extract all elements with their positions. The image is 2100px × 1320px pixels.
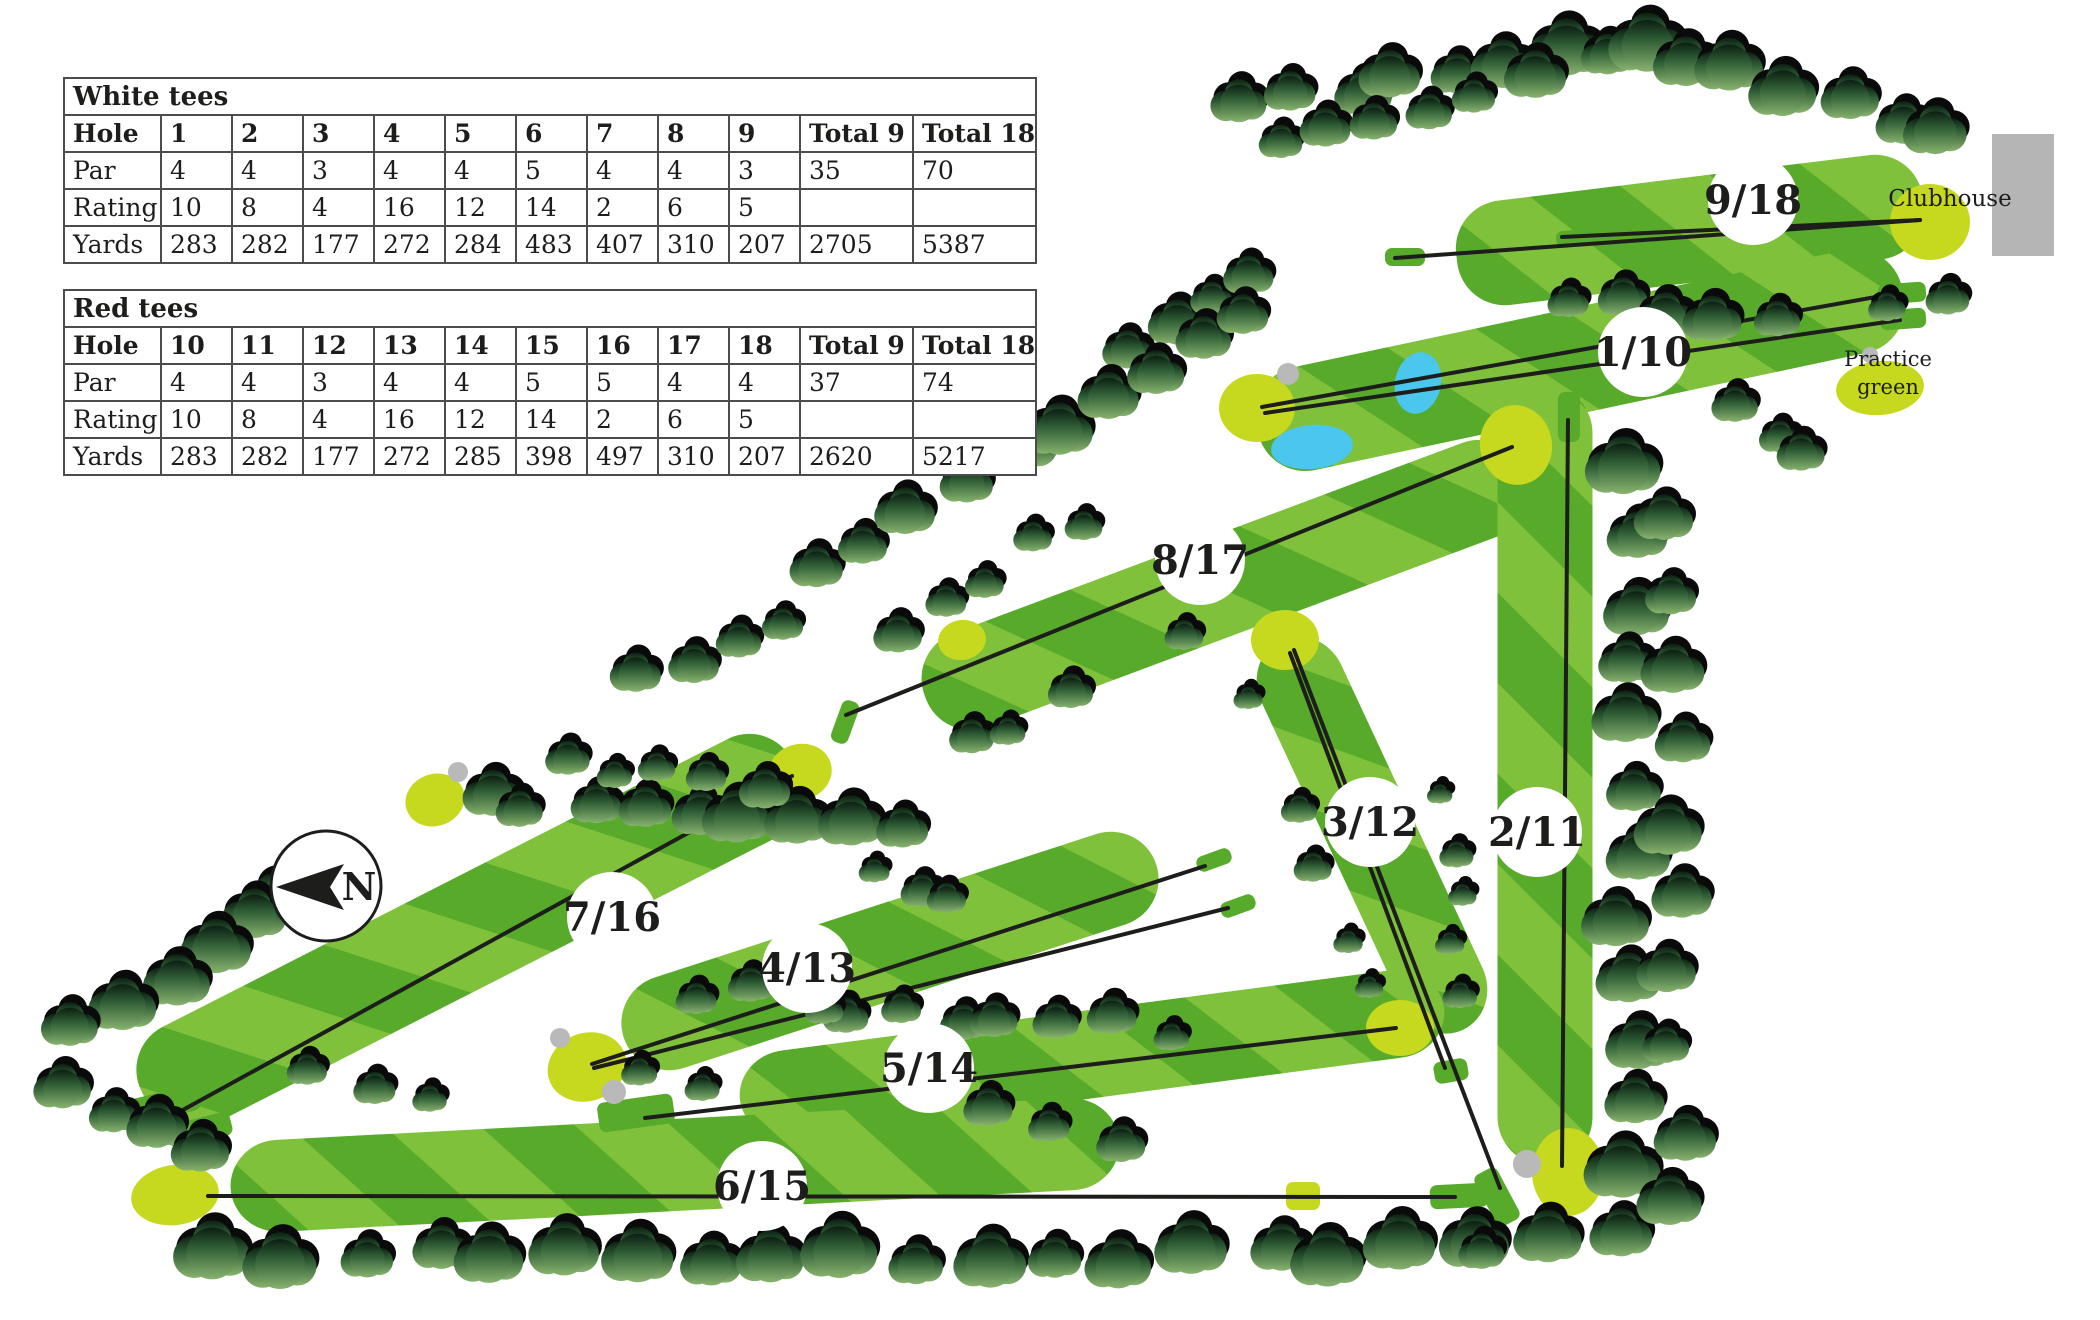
tree-icon [1032,995,1081,1039]
tree-icon [1333,923,1365,954]
hole-marker-label: 1/10 [1594,329,1692,376]
hole-line [208,1196,1455,1197]
red-cell: 14 [516,401,587,438]
tree-icon [1634,486,1696,540]
white-cell: 16 [374,189,445,226]
white-cell: 5 [729,189,800,226]
white-header-cell: 2 [232,115,303,152]
north-compass: N [271,831,381,941]
tree-icon [1087,988,1140,1034]
tree-icon [1358,42,1423,97]
white-cell [800,189,913,226]
tree-icon [970,992,1021,1037]
white-cell: 8 [232,189,303,226]
tree-icon [1604,1069,1667,1123]
white-cell: 6 [658,189,729,226]
tree-icon [925,577,969,616]
white-cell: 310 [658,226,729,263]
red-header-cell: 15 [516,327,587,364]
white-cell: 284 [445,226,516,263]
tree-icon [790,538,846,587]
bunker [602,1080,626,1104]
red-cell: 4 [161,364,232,401]
tree-icon [412,1077,449,1111]
red-cell: 6 [658,401,729,438]
tree-icon [1028,1229,1084,1278]
white-cell: 35 [800,152,913,189]
tree-icon [1640,636,1707,693]
white-cell: 283 [161,226,232,263]
tree-icon [353,1064,398,1104]
tree-icon [685,1066,723,1101]
tree-icon [1210,71,1269,122]
red-header-cell: 16 [587,327,658,364]
hole-marker-label: 8/17 [1151,537,1249,584]
white-header-cell: 3 [303,115,374,152]
tree-icon [1259,116,1306,157]
red-cell: 283 [161,438,232,475]
white-cell: Rating [64,189,161,226]
red-header-cell: Total 18 [913,327,1036,364]
tree-icon [545,732,592,774]
white-cell: 207 [729,226,800,263]
tree-icon [610,644,664,691]
red-cell: 3 [303,364,374,401]
tree-icon [1294,844,1335,881]
red-cell: 16 [374,401,445,438]
white-cell [913,189,1036,226]
white-cell: Par [64,152,161,189]
putting-green [1251,610,1319,670]
tree-icon [597,753,635,788]
hole-marker-label: 3/12 [1321,799,1419,846]
tree-icon [1363,1206,1438,1270]
white-cell: 3 [303,152,374,189]
tree-icon [762,600,806,640]
clubhouse-label: Clubhouse [1888,186,2011,212]
tree-icon [1154,1210,1229,1274]
white-header-cell: 8 [658,115,729,152]
white-cell: 483 [516,226,587,263]
red-cell: 2620 [800,438,913,475]
red-header-cell: 10 [161,327,232,364]
tree-icon [965,560,1007,598]
white-cell: 14 [516,189,587,226]
red-header-cell: 17 [658,327,729,364]
red-header-cell: Total 9 [800,327,913,364]
bunker [550,1028,570,1048]
white-cell: 4 [445,152,516,189]
tree-icon [1427,776,1455,803]
tree-icon [873,607,924,652]
tree-icon [1711,378,1760,422]
white-cell: 4 [374,152,445,189]
red-cell [800,401,913,438]
red-cell: 4 [232,364,303,401]
tree-icon [818,787,886,845]
tree-icon [888,1234,946,1284]
hole-marker-label: 6/15 [713,1163,811,1210]
practice-green-label: Practice [1844,347,1932,371]
red-cell: 497 [587,438,658,475]
hole-marker-label: 2/11 [1488,809,1586,856]
tree-icon [668,636,722,683]
white-header-cell: 5 [445,115,516,152]
white-header-cell: 9 [729,115,800,152]
red-cell: 310 [658,438,729,475]
red-cell: 37 [800,364,913,401]
red-cell: 5 [587,364,658,401]
tree-icon [874,479,938,534]
bunker [1277,363,1299,385]
red-header-cell: 18 [729,327,800,364]
white-cell: 4 [232,152,303,189]
tree-icon [876,800,931,848]
tree-icon [1645,567,1699,614]
white-cell: 70 [913,152,1036,189]
white-header-cell: Total 9 [800,115,913,152]
tree-icon [1448,876,1479,906]
white-cell: 2 [587,189,658,226]
red-header-cell: 11 [232,327,303,364]
tree-icon [1264,63,1318,111]
tree-icon [341,1229,396,1277]
red-cell: 282 [232,438,303,475]
red-cell: Rating [64,401,161,438]
white-cell: 12 [445,189,516,226]
compass-north-label: N [342,864,377,909]
white-cell: Yards [64,226,161,263]
white-tees-scorecard: White teesHole123456789Total 9Total 18Pa… [63,77,1037,264]
white-cell: 177 [303,226,374,263]
red-cell: 5 [516,364,587,401]
white-cell: 407 [587,226,658,263]
white-cell: 5387 [913,226,1036,263]
white-cell: 4 [161,152,232,189]
white-header-cell: 4 [374,115,445,152]
red-cell: 5217 [913,438,1036,475]
red-header-cell: 12 [303,327,374,364]
red-cell: Yards [64,438,161,475]
red-cell: 74 [913,364,1036,401]
practice-green-label: green [1857,375,1919,399]
red-cell: 4 [445,364,516,401]
red-cell: 5 [729,401,800,438]
tree-icon [1637,939,1699,992]
red-cell: 2 [587,401,658,438]
tree-icon [859,851,893,883]
red-cell: 177 [303,438,374,475]
white-cell: 282 [232,226,303,263]
tree-icon [1065,503,1106,540]
red-cell: 272 [374,438,445,475]
red-title: Red tees [64,290,1036,327]
golf-course-page: 1/102/113/124/135/146/157/168/179/18Club… [0,0,2100,1320]
red-cell: 12 [445,401,516,438]
fairway [1498,385,1593,1165]
red-cell: Par [64,364,161,401]
white-cell: 272 [374,226,445,263]
red-cell: 4 [303,401,374,438]
red-header-cell: Hole [64,327,161,364]
red-tees-scorecard: Red teesHole101112131415161718Total 9Tot… [63,289,1037,476]
tree-icon [800,1211,880,1278]
red-cell: 8 [232,401,303,438]
tree-icon [1655,712,1714,763]
red-cell: 10 [161,401,232,438]
bunker [1513,1150,1541,1178]
white-header-cell: 7 [587,115,658,152]
white-header-cell: Hole [64,115,161,152]
tree-icon [1439,833,1476,867]
white-cell: 10 [161,189,232,226]
red-cell: 398 [516,438,587,475]
white-header-cell: Total 18 [913,115,1036,152]
red-header-cell: 13 [374,327,445,364]
hole-line [1294,650,1500,1188]
hole-marker-label: 7/16 [563,894,661,941]
tree-icon [638,744,678,781]
tree-icon [1821,66,1882,119]
tree-icon [1585,428,1664,494]
white-header-cell: 1 [161,115,232,152]
tree-icon [716,615,764,658]
tree-icon [1591,682,1661,742]
bunker [448,762,468,782]
tee-box [1218,892,1257,919]
red-cell: 4 [729,364,800,401]
tree-icon [242,1224,319,1289]
tree-icon [1926,273,1973,315]
tree-icon [1013,514,1055,552]
tree-icon [33,1056,94,1108]
white-cell: 4 [303,189,374,226]
tree-icon [953,1224,1029,1288]
tree-icon [528,1213,602,1275]
tree-icon [1606,761,1664,811]
putting-green [1219,374,1295,442]
white-header-cell: 6 [516,115,587,152]
hole-marker-label: 4/13 [758,945,856,992]
red-cell: 207 [729,438,800,475]
tee-box [829,698,861,746]
white-cell: 3 [729,152,800,189]
tree-icon [736,1222,807,1282]
tree-icon [680,1231,744,1286]
red-cell: 4 [658,364,729,401]
red-cell [913,401,1036,438]
white-cell: 2705 [800,226,913,263]
hole-marker-label: 9/18 [1704,177,1802,224]
red-header-cell: 14 [445,327,516,364]
tree-icon [1654,1105,1719,1161]
tree-icon [601,1219,676,1283]
hole-marker-label: 5/14 [880,1045,978,1092]
white-cell: 4 [587,152,658,189]
white-cell: 5 [516,152,587,189]
red-cell: 4 [374,364,445,401]
white-title: White tees [64,78,1036,115]
tree-icon [1084,1229,1154,1288]
red-cell: 285 [445,438,516,475]
white-cell: 4 [658,152,729,189]
